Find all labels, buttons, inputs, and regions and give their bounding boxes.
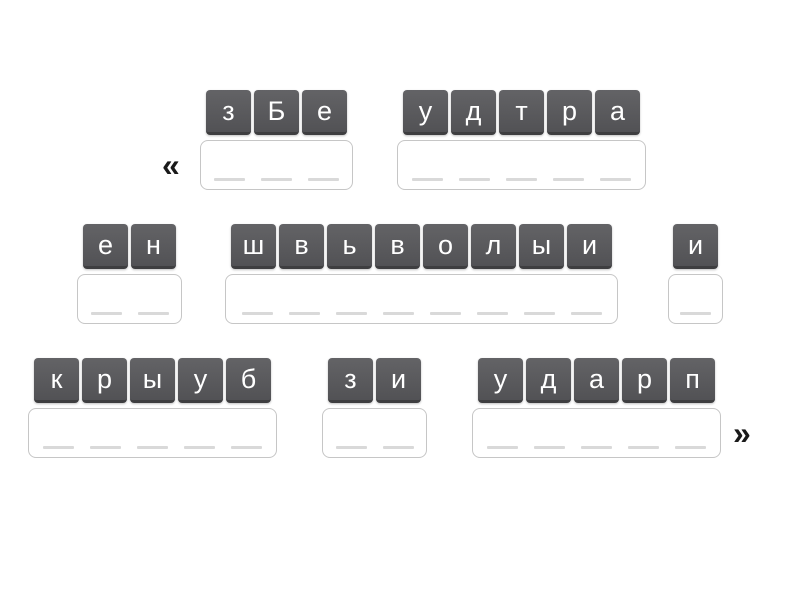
letter-slot-line (308, 178, 339, 181)
letter-tile[interactable]: п (670, 358, 715, 403)
letter-tile[interactable]: Б (254, 90, 299, 135)
letter-slot-line (214, 178, 245, 181)
letter-slot-line (600, 178, 631, 181)
letter-slot-line (675, 446, 706, 449)
tile-row-8: у д а р п (478, 358, 715, 403)
letter-tile[interactable]: л (471, 224, 516, 269)
letter-slot-line (336, 312, 367, 315)
letter-slot-line (487, 446, 518, 449)
letter-tile[interactable]: з (328, 358, 373, 403)
letter-slot-line (289, 312, 320, 315)
word-group-6: к р ы у б (28, 358, 277, 458)
letter-tile[interactable]: н (131, 224, 176, 269)
letter-tile[interactable]: б (226, 358, 271, 403)
letter-tile[interactable]: а (595, 90, 640, 135)
anagram-board: « з Б е у д т р а (0, 0, 800, 600)
letter-slot-line (680, 312, 711, 315)
letter-slot-line (231, 446, 262, 449)
letter-slot-line (383, 312, 414, 315)
tile-row-5: и (673, 224, 718, 269)
letter-tile[interactable]: д (526, 358, 571, 403)
answer-box-7[interactable] (322, 408, 427, 458)
letter-tile[interactable]: ы (519, 224, 564, 269)
letter-slot-line (506, 178, 537, 181)
word-group-4: ш в ь в о л ы и (225, 224, 618, 324)
letter-slot-line (553, 178, 584, 181)
answer-box-6[interactable] (28, 408, 277, 458)
letter-slot-line (571, 312, 602, 315)
tile-row-3: е н (83, 224, 176, 269)
letter-slot-line (524, 312, 555, 315)
answer-box-4[interactable] (225, 274, 618, 324)
tile-row-4: ш в ь в о л ы и (231, 224, 612, 269)
tile-row-1: з Б е (206, 90, 347, 135)
letter-tile[interactable]: д (451, 90, 496, 135)
letter-tile[interactable]: в (375, 224, 420, 269)
letter-tile[interactable]: у (478, 358, 523, 403)
letter-slot-line (534, 446, 565, 449)
word-group-3: е н (77, 224, 182, 324)
letter-slot-line (90, 446, 121, 449)
letter-slot-line (184, 446, 215, 449)
letter-slot-line (137, 446, 168, 449)
letter-tile[interactable]: р (622, 358, 667, 403)
letter-tile[interactable]: у (178, 358, 223, 403)
letter-tile[interactable]: и (673, 224, 718, 269)
letter-slot-line (477, 312, 508, 315)
word-group-7: з и (322, 358, 427, 458)
tile-row-7: з и (328, 358, 421, 403)
letter-tile[interactable]: к (34, 358, 79, 403)
letter-slot-line (383, 446, 414, 449)
letter-tile[interactable]: у (403, 90, 448, 135)
answer-box-1[interactable] (200, 140, 353, 190)
letter-tile[interactable]: о (423, 224, 468, 269)
word-group-2: у д т р а (397, 90, 646, 190)
letter-slot-line (336, 446, 367, 449)
letter-tile[interactable]: и (567, 224, 612, 269)
letter-tile[interactable]: з (206, 90, 251, 135)
letter-slot-line (581, 446, 612, 449)
letter-tile[interactable]: ш (231, 224, 276, 269)
answer-box-3[interactable] (77, 274, 182, 324)
letter-tile[interactable]: ы (130, 358, 175, 403)
answer-box-8[interactable] (472, 408, 721, 458)
letter-tile[interactable]: е (83, 224, 128, 269)
letter-tile[interactable]: ь (327, 224, 372, 269)
word-group-5: и (668, 224, 723, 324)
answer-box-2[interactable] (397, 140, 646, 190)
letter-slot-line (628, 446, 659, 449)
letter-tile[interactable]: и (376, 358, 421, 403)
next-question-arrow[interactable]: » (733, 415, 751, 451)
letter-tile[interactable]: е (302, 90, 347, 135)
tile-row-2: у д т р а (403, 90, 640, 135)
letter-slot-line (459, 178, 490, 181)
letter-tile[interactable]: р (82, 358, 127, 403)
letter-slot-line (138, 312, 169, 315)
letter-tile[interactable]: в (279, 224, 324, 269)
prev-question-arrow[interactable]: « (162, 147, 180, 183)
word-group-8: у д а р п (472, 358, 721, 458)
letter-slot-line (43, 446, 74, 449)
tile-row-6: к р ы у б (34, 358, 271, 403)
letter-slot-line (430, 312, 461, 315)
letter-tile[interactable]: р (547, 90, 592, 135)
letter-slot-line (242, 312, 273, 315)
letter-slot-line (261, 178, 292, 181)
letter-slot-line (91, 312, 122, 315)
letter-tile[interactable]: т (499, 90, 544, 135)
word-group-1: з Б е (200, 90, 353, 190)
letter-slot-line (412, 178, 443, 181)
answer-box-5[interactable] (668, 274, 723, 324)
letter-tile[interactable]: а (574, 358, 619, 403)
